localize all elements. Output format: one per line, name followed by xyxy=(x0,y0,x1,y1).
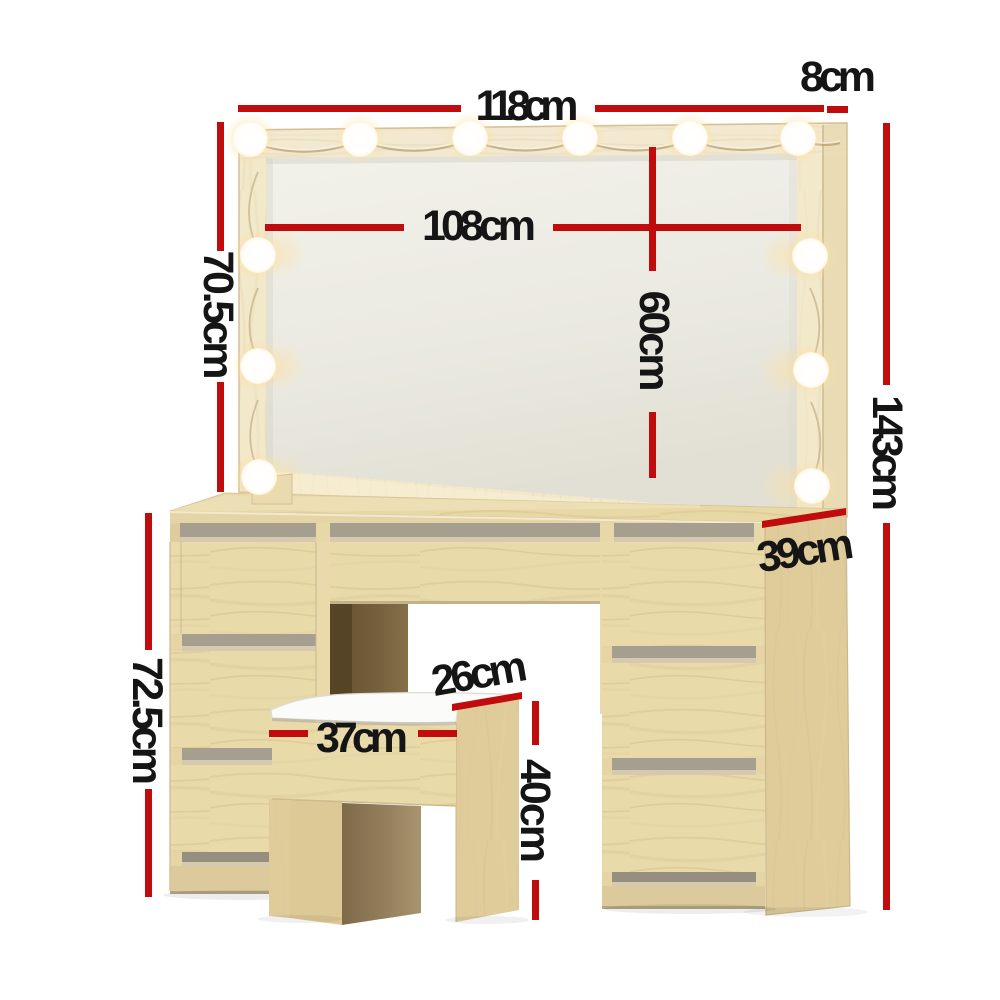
svg-text:72.5cm: 72.5cm xyxy=(123,657,171,785)
svg-text:70.5cm: 70.5cm xyxy=(194,251,242,380)
svg-text:60cm: 60cm xyxy=(630,291,678,392)
svg-text:8cm: 8cm xyxy=(800,53,876,101)
svg-text:40cm: 40cm xyxy=(511,759,559,863)
svg-text:37cm: 37cm xyxy=(316,714,408,762)
svg-text:108cm: 108cm xyxy=(422,202,536,250)
svg-text:143cm: 143cm xyxy=(863,395,911,511)
svg-text:118cm: 118cm xyxy=(476,82,579,130)
